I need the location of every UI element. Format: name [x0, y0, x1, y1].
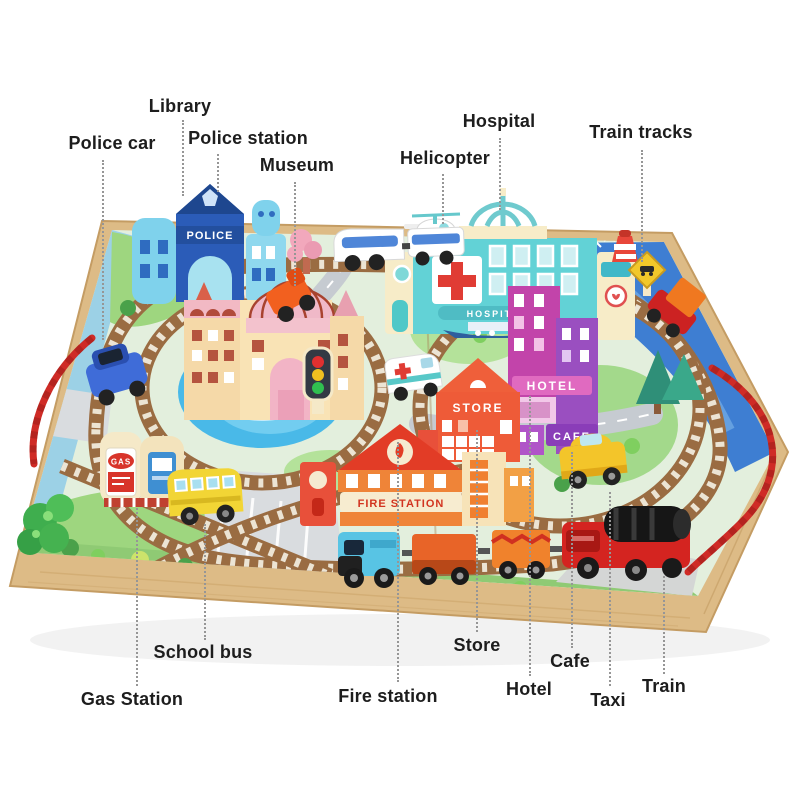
leader-line-museum: [294, 182, 296, 286]
annotation-gas-station-text: Gas Station: [81, 689, 183, 709]
leader-line-gas-station: [136, 508, 138, 686]
annotation-train: Train: [642, 676, 686, 697]
annotation-helicopter: Helicopter: [400, 148, 490, 169]
annotation-hotel: Hotel: [506, 679, 552, 700]
annotation-store-text: Store: [453, 635, 500, 655]
leader-line-cafe: [571, 452, 573, 648]
annotation-train-text: Train: [642, 676, 686, 696]
annotation-school-bus: School bus: [153, 642, 252, 663]
leader-line-helicopter: [442, 174, 444, 224]
annotation-police-station: Police station: [188, 128, 308, 149]
leader-line-library: [182, 120, 184, 196]
annotation-train-tracks: Train tracks: [589, 122, 692, 143]
leader-line-police-car: [102, 160, 104, 340]
annotation-helicopter-text: Helicopter: [400, 148, 490, 168]
annotation-library-text: Library: [149, 96, 211, 116]
product-photo: POLICE: [0, 0, 810, 810]
annotation-fire-station: Fire station: [338, 686, 437, 707]
leader-line-fire-station: [397, 442, 399, 682]
annotation-hospital: Hospital: [463, 111, 536, 132]
leader-line-hotel: [529, 396, 531, 676]
police-station-block: POLICE: [176, 184, 286, 302]
annotation-police-car: Police car: [68, 133, 155, 154]
annotation-fire-station-text: Fire station: [338, 686, 437, 706]
annotation-store: Store: [453, 635, 500, 656]
hotel-sign-text: HOTEL: [527, 379, 578, 393]
leader-line-school-bus: [204, 524, 206, 640]
leader-line-hospital: [499, 138, 501, 210]
police-sign-text: POLICE: [187, 230, 234, 242]
leader-line-taxi: [609, 492, 611, 686]
library-tower-block: [132, 218, 176, 304]
fire-station-sign-text: FIRE STATION: [358, 498, 445, 510]
annotation-cafe: Cafe: [550, 651, 590, 672]
annotation-train-tracks-text: Train tracks: [589, 122, 692, 142]
annotation-school-bus-text: School bus: [153, 642, 252, 662]
leader-line-train-tracks: [641, 150, 643, 262]
store-sign-text: STORE: [452, 401, 503, 415]
leader-line-store: [476, 430, 478, 632]
annotation-museum-text: Museum: [260, 155, 334, 175]
annotation-police-car-text: Police car: [68, 133, 155, 153]
annotation-taxi-text: Taxi: [590, 690, 625, 710]
annotation-gas-station: Gas Station: [81, 689, 183, 710]
annotation-hotel-text: Hotel: [506, 679, 552, 699]
annotation-library: Library: [149, 96, 211, 117]
gas-sign-text: GAS: [111, 458, 131, 467]
annotation-hospital-text: Hospital: [463, 111, 536, 131]
annotation-cafe-text: Cafe: [550, 651, 590, 671]
leader-line-train: [663, 576, 665, 674]
leader-line-police-station: [217, 154, 219, 192]
annotation-taxi: Taxi: [590, 690, 625, 711]
annotation-museum: Museum: [260, 155, 334, 176]
annotation-police-station-text: Police station: [188, 128, 308, 148]
